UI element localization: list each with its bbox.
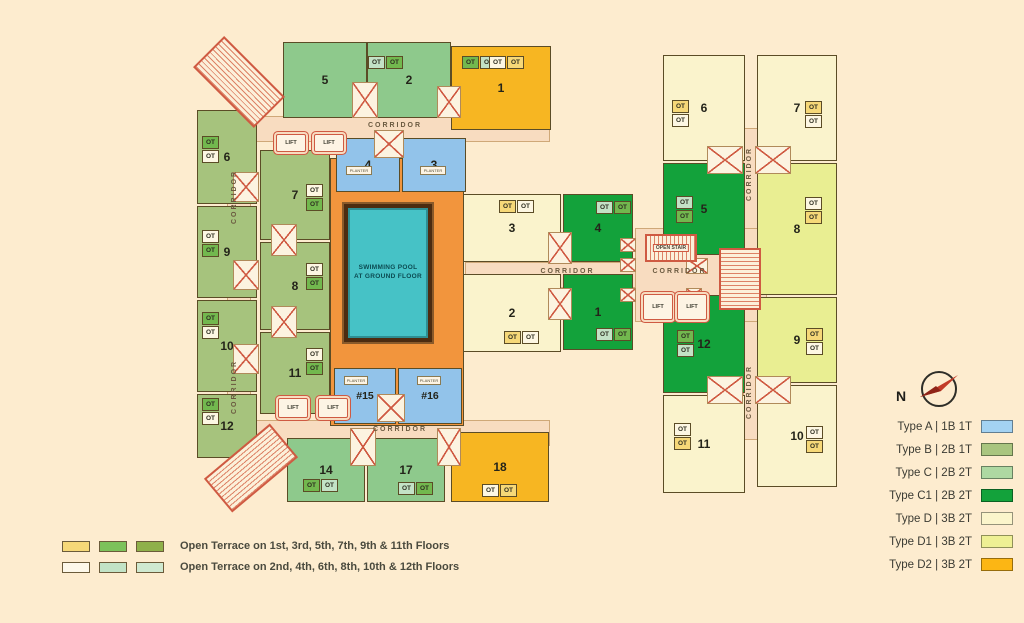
legend-row-type-d1: Type D1 | 3B 2T (843, 535, 1013, 548)
corridor-label: CORRIDOR (746, 356, 753, 428)
open-terrace-label: OT (462, 56, 479, 69)
open-terrace-pair: OTOT (596, 328, 631, 341)
open-terrace-pair: OTOT (596, 201, 631, 214)
open-terrace-pair: OTOT (368, 56, 403, 69)
compass-icon (896, 366, 966, 414)
open-terrace-label: OT (674, 423, 691, 436)
shaft (707, 146, 743, 174)
open-terrace-label: OT (416, 482, 433, 495)
shaft (620, 238, 636, 252)
legend-label: Type D1 | 3B 2T (889, 536, 972, 548)
unit-right-8: 8 (757, 163, 837, 295)
open-terrace-label: OT (522, 331, 539, 344)
planter-label: PLANTER (420, 166, 446, 175)
open-terrace-label: OT (677, 344, 694, 357)
shaft (374, 130, 404, 158)
legend-row-type-c: Type C | 2B 2T (843, 466, 1013, 479)
unit-type-legend: Type A | 1B 1T Type B | 2B 1T Type C | 2… (843, 420, 1013, 571)
shaft (350, 428, 376, 466)
shaft (755, 376, 791, 404)
open-terrace-label: OT (306, 184, 323, 197)
open-terrace-label: OT (507, 56, 524, 69)
open-terrace-label: OT (596, 328, 613, 341)
open-terrace-pair: OTOT (303, 479, 338, 492)
open-terrace-label: OT (202, 398, 219, 411)
lift: LIFT (318, 398, 348, 418)
lift: LIFT (314, 134, 344, 152)
open-terrace-label: OT (676, 196, 693, 209)
open-terrace-label: OT (303, 479, 320, 492)
corridor-label: CORRIDOR (340, 122, 450, 129)
legend-swatch-type-b (981, 443, 1013, 456)
open-terrace-pair: OTOT (306, 348, 323, 375)
open-terrace-label: OT (677, 330, 694, 343)
open-terrace-label: OT (596, 201, 613, 214)
open-terrace-label: OT (489, 56, 506, 69)
legend-row-type-c1: Type C1 | 2B 2T (843, 489, 1013, 502)
lift: LIFT (677, 294, 707, 320)
shaft (620, 288, 636, 302)
open-terrace-pair: OTOT (489, 56, 524, 69)
north-compass: N (896, 366, 966, 414)
legend-row-type-d2: Type D2 | 3B 2T (843, 558, 1013, 571)
unit-right-9: 9 (757, 297, 837, 383)
legend-row-type-d: Type D | 3B 2T (843, 512, 1013, 525)
shaft (437, 428, 461, 466)
open-terrace-label: OT (202, 312, 219, 325)
planter-label: PLANTER (346, 166, 372, 175)
shaft (233, 260, 259, 290)
open-stair: OPEN STAIR (645, 234, 697, 262)
corridor-label: CORRIDOR (520, 268, 615, 275)
open-terrace-label: OT (306, 198, 323, 211)
terrace-legend-row-even: Open Terrace on 2nd, 4th, 6th, 8th, 10th… (62, 561, 459, 573)
open-terrace-label: OT (306, 263, 323, 276)
open-terrace-label: OT (805, 211, 822, 224)
terrace-legend: Open Terrace on 1st, 3rd, 5th, 7th, 9th … (62, 540, 459, 582)
terrace-swatch (136, 562, 164, 573)
swimming-pool-label: SWIMMING POOL AT GROUND FLOOR (354, 264, 422, 282)
lift: LIFT (276, 134, 306, 152)
open-terrace-label: OT (202, 230, 219, 243)
open-terrace-label: OT (202, 412, 219, 425)
stair-right-core-icon (719, 248, 761, 310)
open-terrace-label: OT (806, 440, 823, 453)
open-terrace-pair: OTOT (805, 197, 822, 224)
north-label: N (896, 388, 906, 404)
open-terrace-pair: OTOT (306, 184, 323, 211)
open-terrace-pair: OTOT (805, 101, 822, 128)
open-terrace-pair: OTOT (202, 136, 219, 163)
terrace-swatch (62, 562, 90, 573)
open-terrace-pair: OTOT (806, 426, 823, 453)
legend-swatch-type-c (981, 466, 1013, 479)
open-terrace-label: OT (202, 136, 219, 149)
open-terrace-label: OT (202, 244, 219, 257)
open-stair-label: OPEN STAIR (653, 244, 689, 252)
open-terrace-pair: OTOT (504, 331, 539, 344)
open-terrace-label: OT (386, 56, 403, 69)
open-terrace-pair: OTOT (674, 423, 691, 450)
open-terrace-label: OT (368, 56, 385, 69)
terrace-swatch (99, 541, 127, 552)
open-terrace-label: OT (806, 328, 823, 341)
open-terrace-pair: OTOT (202, 230, 219, 257)
terrace-swatch (99, 562, 127, 573)
open-terrace-pair: OTOT (306, 263, 323, 290)
legend-row-type-b: Type B | 2B 1T (843, 443, 1013, 456)
open-terrace-label: OT (306, 277, 323, 290)
lift: LIFT (278, 398, 308, 418)
open-terrace-label: OT (805, 115, 822, 128)
open-terrace-label: OT (806, 426, 823, 439)
legend-label: Type D | 3B 2T (896, 513, 973, 525)
open-terrace-pair: OTOT (677, 330, 694, 357)
open-terrace-label: OT (321, 479, 338, 492)
open-terrace-label: OT (499, 200, 516, 213)
shaft (707, 376, 743, 404)
planter-label: PLANTER (417, 376, 441, 385)
open-terrace-pair: OTOT (676, 196, 693, 223)
floor-plan-canvas: SWIMMING POOL AT GROUND FLOOR 5 2 1 4 3 … (0, 0, 1024, 623)
open-terrace-pair: OTOT (499, 200, 534, 213)
open-terrace-label: OT (500, 484, 517, 497)
open-terrace-label: OT (806, 342, 823, 355)
legend-label: Type D2 | 3B 2T (889, 559, 972, 571)
open-terrace-label: OT (202, 150, 219, 163)
legend-swatch-type-a (981, 420, 1013, 433)
corridor-label: CORRIDOR (746, 138, 753, 210)
open-terrace-label: OT (398, 482, 415, 495)
open-terrace-label: OT (482, 484, 499, 497)
open-terrace-label: OT (672, 100, 689, 113)
corridor-label: CORRIDOR (632, 268, 727, 275)
corridor-label: CORRIDOR (231, 352, 238, 422)
open-terrace-label: OT (672, 114, 689, 127)
legend-swatch-type-d2 (981, 558, 1013, 571)
open-terrace-label: OT (805, 197, 822, 210)
terrace-legend-text: Open Terrace on 2nd, 4th, 6th, 8th, 10th… (180, 561, 459, 573)
legend-swatch-type-d1 (981, 535, 1013, 548)
shaft (437, 86, 461, 118)
legend-swatch-type-c1 (981, 489, 1013, 502)
open-terrace-pair: OTOT (806, 328, 823, 355)
legend-label: Type B | 2B 1T (896, 444, 972, 456)
open-terrace-pair: OTOT (482, 484, 517, 497)
shaft (271, 306, 297, 338)
terrace-legend-row-odd: Open Terrace on 1st, 3rd, 5th, 7th, 9th … (62, 540, 459, 552)
unit-left-3: 3 (402, 138, 466, 192)
open-terrace-label: OT (517, 200, 534, 213)
legend-label: Type C1 | 2B 2T (889, 490, 972, 502)
shaft (755, 146, 791, 174)
legend-row-type-a: Type A | 1B 1T (843, 420, 1013, 433)
shaft (271, 224, 297, 256)
open-terrace-label: OT (676, 210, 693, 223)
shaft (377, 394, 405, 422)
open-terrace-pair: OTOT (202, 398, 219, 425)
terrace-swatch (62, 541, 90, 552)
open-terrace-label: OT (202, 326, 219, 339)
legend-label: Type C | 2B 2T (896, 467, 973, 479)
open-terrace-label: OT (805, 101, 822, 114)
open-terrace-label: OT (306, 362, 323, 375)
legend-swatch-type-d (981, 512, 1013, 525)
shaft (548, 232, 572, 264)
corridor-label: CORRIDOR (345, 426, 455, 433)
open-terrace-pair: OTOT (672, 100, 689, 127)
open-terrace-label: OT (614, 328, 631, 341)
terrace-legend-text: Open Terrace on 1st, 3rd, 5th, 7th, 9th … (180, 540, 449, 552)
open-terrace-pair: OTOT (398, 482, 433, 495)
planter-label: PLANTER (344, 376, 368, 385)
legend-label: Type A | 1B 1T (897, 421, 972, 433)
open-terrace-label: OT (504, 331, 521, 344)
corridor-label: CORRIDOR (231, 162, 238, 232)
swimming-pool: SWIMMING POOL AT GROUND FLOOR (344, 204, 432, 342)
shaft (352, 82, 378, 118)
terrace-swatch (136, 541, 164, 552)
open-terrace-label: OT (306, 348, 323, 361)
open-terrace-label: OT (614, 201, 631, 214)
open-terrace-pair: OTOT (202, 312, 219, 339)
shaft (548, 288, 572, 320)
lift: LIFT (643, 294, 673, 320)
open-terrace-label: OT (674, 437, 691, 450)
